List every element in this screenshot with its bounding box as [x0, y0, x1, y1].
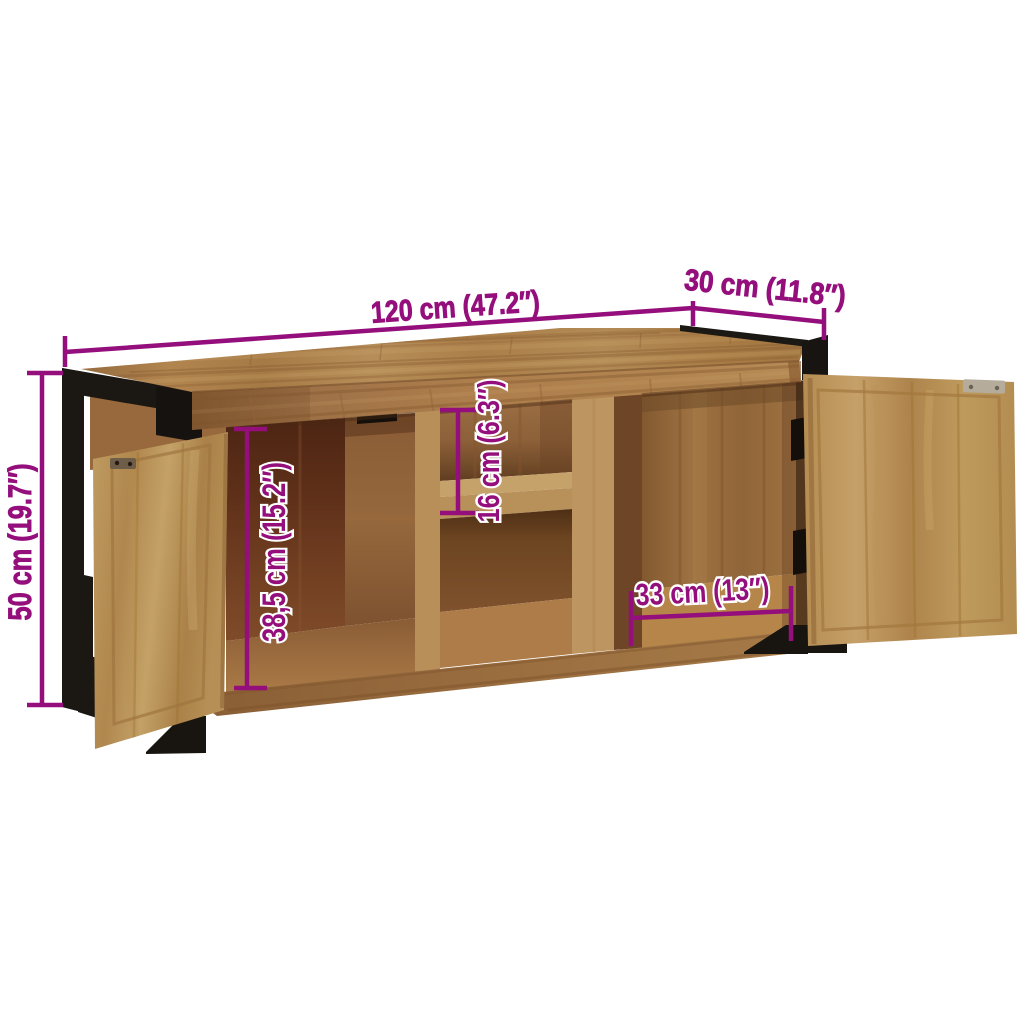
svg-text:38,5 cm (15.2″): 38,5 cm (15.2″): [256, 462, 292, 642]
svg-text:50 cm (19.7″): 50 cm (19.7″): [2, 464, 38, 621]
svg-text:16 cm (6.3″): 16 cm (6.3″): [471, 380, 506, 523]
svg-text:33 cm (13″): 33 cm (13″): [635, 571, 771, 613]
